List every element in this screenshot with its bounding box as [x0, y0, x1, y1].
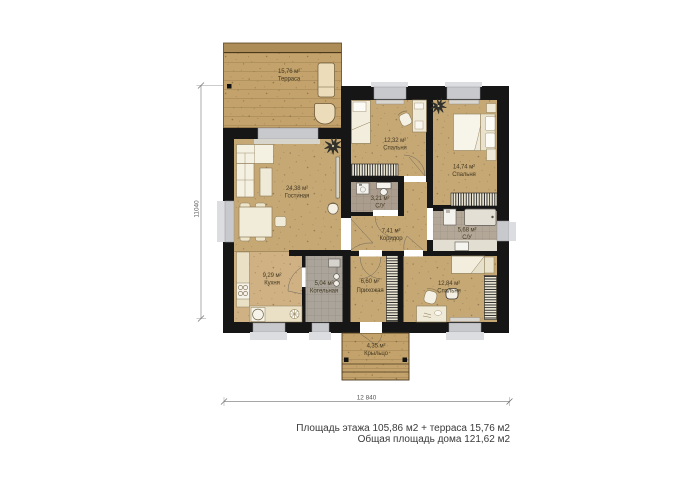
- svg-text:С/У: С/У: [375, 204, 385, 210]
- svg-text:Гостиная: Гостиная: [285, 194, 309, 200]
- svg-text:6,60 м²: 6,60 м²: [361, 279, 380, 285]
- svg-text:Общая площадь дома 121,62 м2: Общая площадь дома 121,62 м2: [358, 433, 511, 445]
- svg-text:12 840: 12 840: [357, 395, 377, 402]
- svg-text:24,38 м²: 24,38 м²: [286, 186, 308, 192]
- svg-text:Спальня: Спальня: [452, 172, 475, 178]
- svg-text:4,35 м²: 4,35 м²: [367, 344, 386, 350]
- svg-text:Котельная: Котельная: [310, 289, 338, 295]
- svg-text:Спальня: Спальня: [383, 146, 406, 152]
- svg-text:Площадь этажа 105,86 м2 + терр: Площадь этажа 105,86 м2 + терраса 15,76 …: [296, 423, 510, 434]
- svg-text:Крыльцо: Крыльцо: [364, 351, 389, 357]
- svg-text:Коридор: Коридор: [380, 236, 404, 242]
- svg-text:11040: 11040: [194, 200, 201, 218]
- svg-text:Кухня: Кухня: [264, 281, 280, 287]
- svg-text:14,74 м²: 14,74 м²: [453, 165, 475, 171]
- svg-text:5,04 м²: 5,04 м²: [315, 281, 334, 287]
- svg-text:7,41 м²: 7,41 м²: [382, 229, 401, 235]
- svg-text:Спальня: Спальня: [437, 289, 460, 295]
- svg-text:12,32 м²: 12,32 м²: [384, 138, 406, 144]
- svg-text:12,84 м²: 12,84 м²: [438, 281, 460, 287]
- svg-text:Прихожая: Прихожая: [356, 288, 383, 294]
- svg-text:9,29 м²: 9,29 м²: [263, 273, 282, 279]
- svg-text:С/У: С/У: [462, 235, 472, 241]
- svg-text:Терраса: Терраса: [278, 77, 301, 83]
- svg-text:15,76 м²: 15,76 м²: [278, 69, 300, 75]
- svg-text:5,68 м²: 5,68 м²: [458, 228, 477, 234]
- svg-text:3,21 м²: 3,21 м²: [371, 196, 390, 202]
